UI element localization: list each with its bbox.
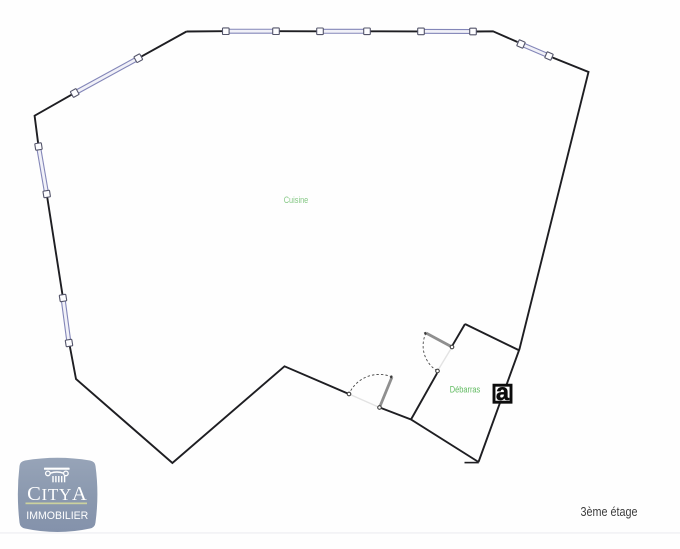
svg-text:Cuisine: Cuisine [284, 195, 309, 206]
svg-text:3ème étage: 3ème étage [581, 505, 638, 519]
svg-text:CITYA: CITYA [27, 483, 87, 505]
svg-text:Débarras: Débarras [450, 385, 481, 396]
svg-text:IMMOBILIER: IMMOBILIER [26, 510, 88, 522]
